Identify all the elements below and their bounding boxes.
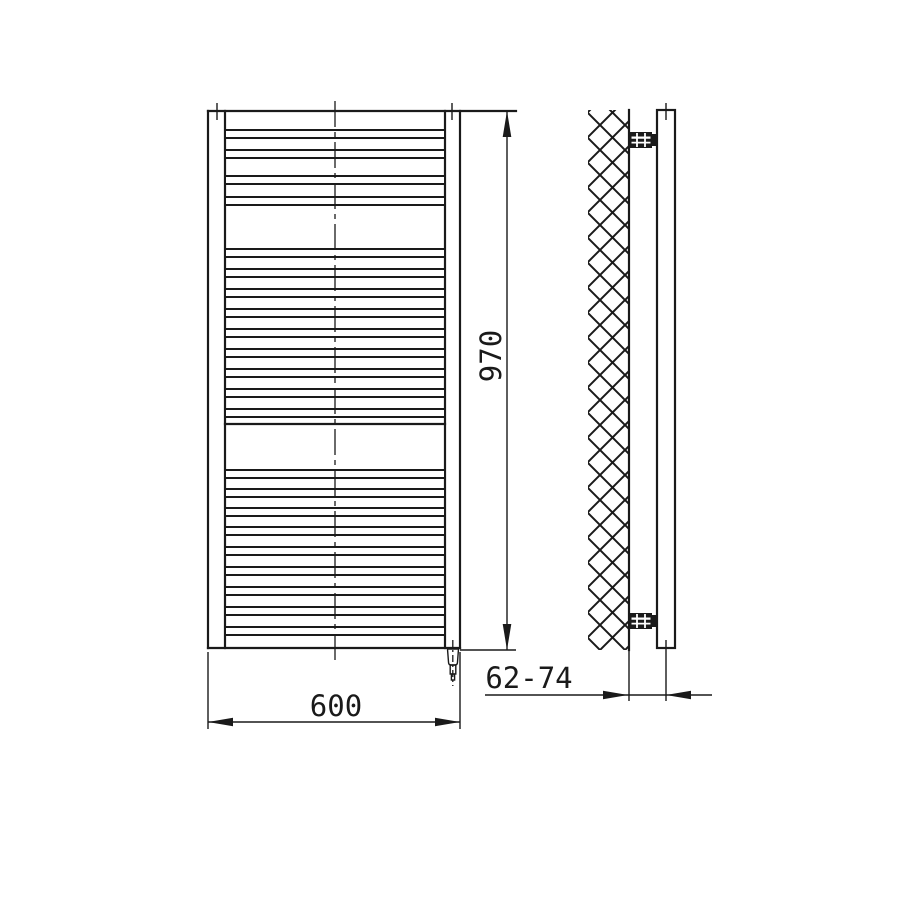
wall-hatch <box>588 110 629 650</box>
dimension-width: 600 <box>208 652 460 729</box>
dimension-height: 970 <box>460 111 516 650</box>
front-view <box>208 101 516 686</box>
wall-distance-dimension-label: 62-74 <box>485 661 572 695</box>
width-dimension-label: 600 <box>310 689 362 723</box>
side-view <box>588 103 675 650</box>
wall-bracket-top <box>630 132 658 148</box>
wall-bracket-bottom <box>630 613 658 629</box>
radiator-profile <box>657 110 675 648</box>
arrow-up-icon <box>503 111 512 137</box>
arrow-down-icon <box>503 624 512 650</box>
left-rail <box>208 111 225 648</box>
radiator-technical-drawing: 600 970 <box>0 0 900 900</box>
arrow-left-icon <box>666 691 691 700</box>
arrow-left-icon <box>208 718 233 727</box>
arrow-right-icon <box>435 718 460 727</box>
right-rail <box>445 111 460 648</box>
drawing-canvas: 600 970 <box>0 0 900 900</box>
arrow-right-icon <box>603 691 628 700</box>
height-dimension-label: 970 <box>474 330 508 382</box>
